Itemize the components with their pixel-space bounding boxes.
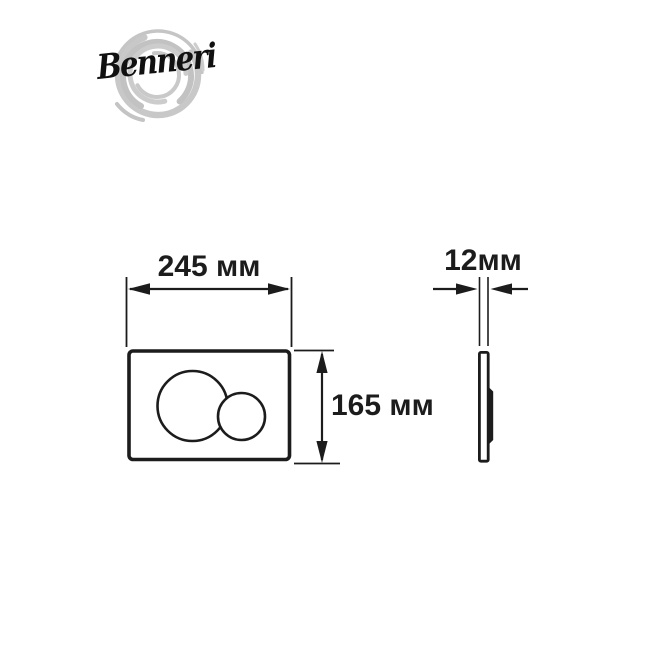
width-dimension-label: 245 мм: [128, 250, 290, 284]
thickness-dimension-label: 12мм: [428, 244, 538, 278]
large-button-circle: [158, 371, 228, 441]
height-dimension-label: 165 мм: [331, 389, 434, 423]
dimension-drawing: [0, 0, 650, 650]
product-dimension-diagram: Benneri: [0, 0, 650, 650]
side-profile-outline: [479, 352, 488, 461]
thickness-dimension: [433, 277, 528, 346]
front-view-drawing: [129, 351, 290, 460]
side-view-drawing: [479, 352, 493, 461]
small-button-circle: [218, 393, 265, 440]
side-profile-button-bump: [487, 386, 493, 447]
width-dimension: [127, 277, 292, 347]
